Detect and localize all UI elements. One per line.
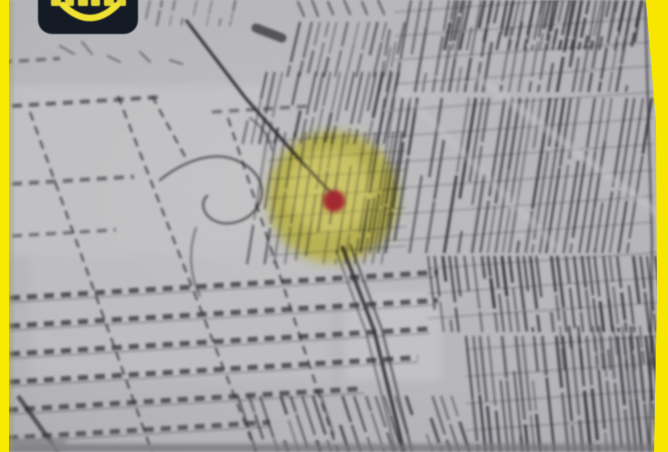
location-marker-dot — [323, 190, 345, 212]
strip-edge-smudge — [9, 0, 13, 452]
map-photo — [0, 0, 668, 452]
map-photo-view — [0, 0, 668, 452]
left-yellow-strip — [0, 0, 9, 452]
logo-badge — [38, 0, 138, 34]
smile-logo-icon — [63, 5, 117, 18]
photo-bottom-shadow — [0, 444, 668, 452]
